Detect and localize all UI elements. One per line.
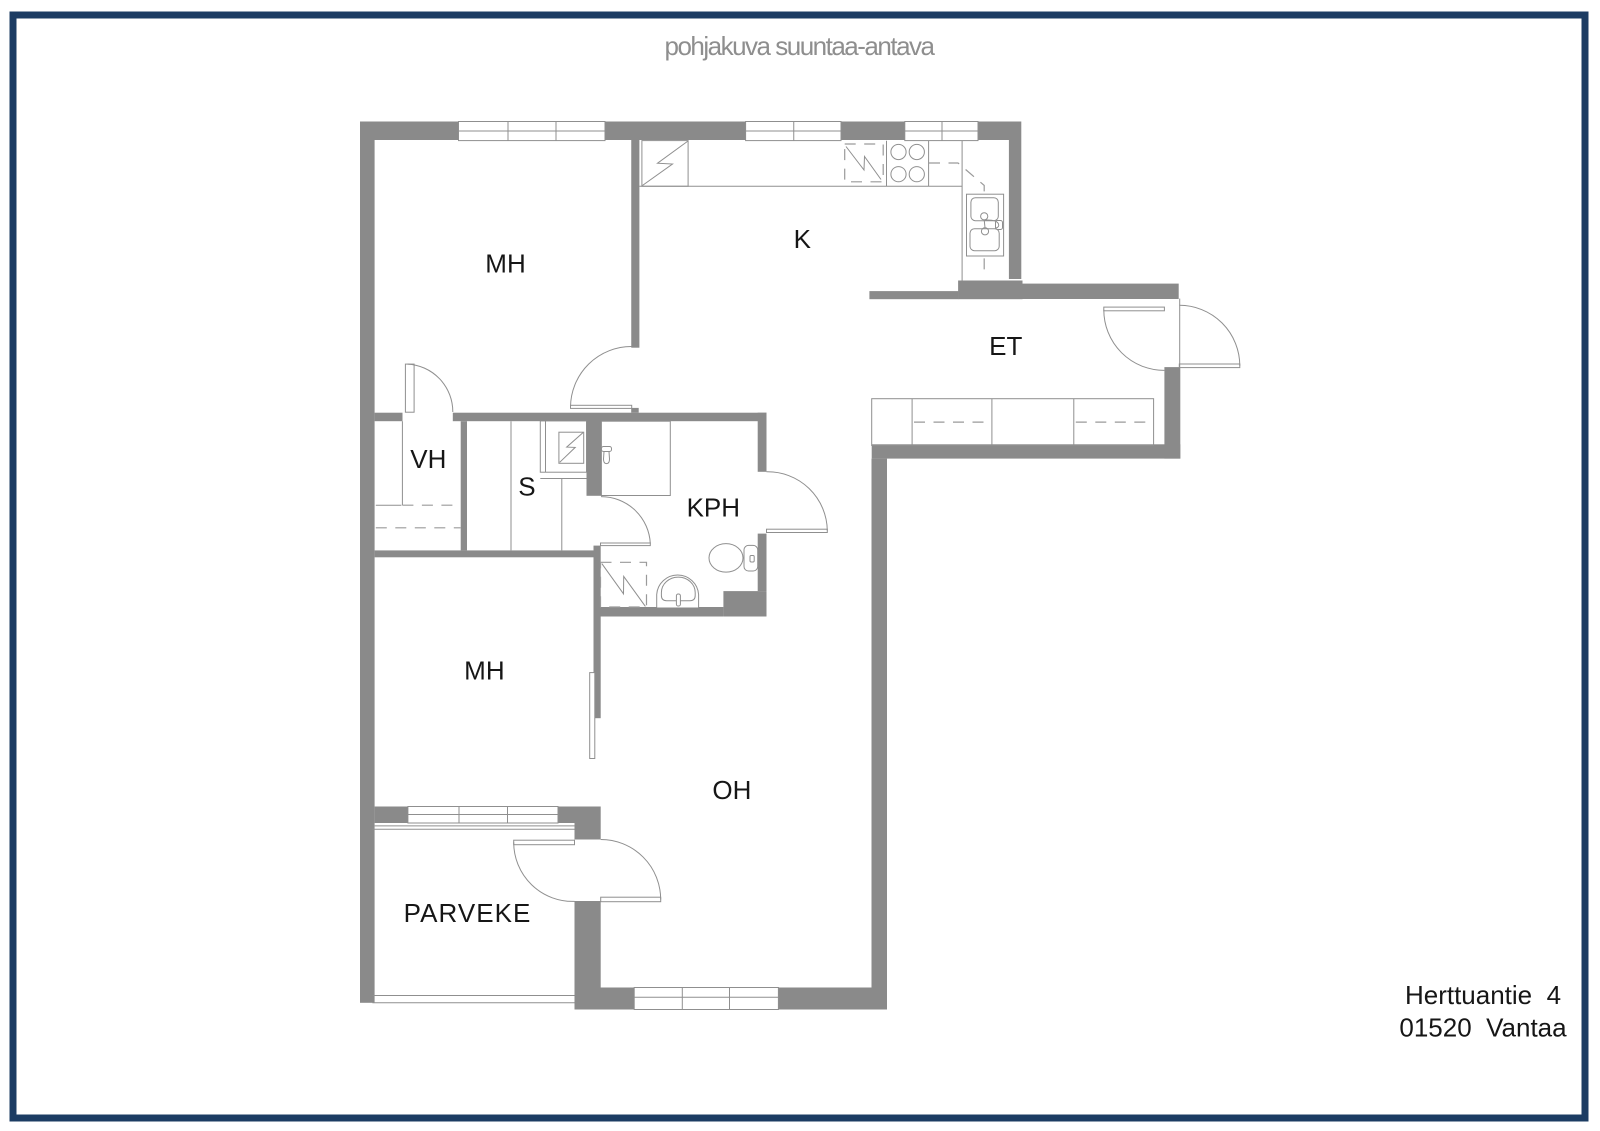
svg-text:pohjakuva suuntaa-antava: pohjakuva suuntaa-antava — [664, 31, 935, 61]
svg-text:PARVEKE: PARVEKE — [404, 898, 532, 928]
svg-text:Herttuantie 4: Herttuantie 4 — [1405, 980, 1561, 1010]
svg-text:S: S — [518, 472, 535, 502]
svg-text:01520 Vantaa: 01520 Vantaa — [1399, 1013, 1567, 1043]
svg-text:MH: MH — [485, 249, 525, 279]
svg-text:ET: ET — [989, 331, 1022, 361]
svg-text:K: K — [794, 224, 812, 254]
svg-text:OH: OH — [712, 775, 751, 805]
svg-text:VH: VH — [410, 444, 446, 474]
svg-text:KPH: KPH — [687, 493, 740, 523]
svg-text:MH: MH — [464, 656, 504, 686]
